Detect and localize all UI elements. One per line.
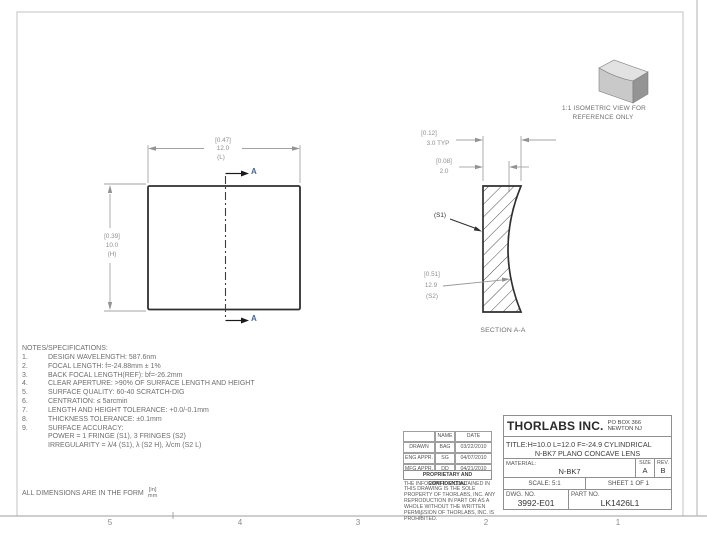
front-height-bracket-dim: [0.39] xyxy=(104,233,120,240)
part-no-cell: PART NO. LK1426L1 xyxy=(568,489,672,510)
drawing-title-line2: N-BK7 PLANO CONCAVE LENS xyxy=(504,449,671,458)
rev-value: B xyxy=(655,466,671,475)
note-item: 6.CENTRATION: ≤ 5arcmin xyxy=(22,398,352,407)
lens-cross-section xyxy=(483,186,521,312)
company-cell: THORLABS INC. PO BOX 366 NEWTON NJ xyxy=(503,415,672,437)
part-no-value: LK1426L1 xyxy=(569,498,671,508)
approval-role: ENG APPR. xyxy=(403,453,435,464)
proprietary-header: PROPRIETARY AND CONFIDENTIAL xyxy=(403,470,492,480)
edge-thickness-bracket-dim: [0.12] xyxy=(421,130,437,137)
front-height-dim-suffix: (H) xyxy=(108,251,117,258)
material-label: MATERIAL: xyxy=(504,459,635,467)
zone-number-3: 3 xyxy=(356,518,360,527)
section-letter-bottom: A xyxy=(251,314,257,323)
front-width-bracket-dim: [0.47] xyxy=(215,137,231,144)
part-no-label: PART NO. xyxy=(569,490,671,498)
approval-date: 04/07/2010 xyxy=(455,453,492,464)
company-address: PO BOX 366 NEWTON NJ xyxy=(608,420,642,433)
dwg-no-value: 3992-E01 xyxy=(504,498,568,508)
title-cell: TITLE:H=10.0 L=12.0 F=-24.9 CYLINDRICAL … xyxy=(503,436,672,459)
iso-caption-line1: 1:1 ISOMETRIC VIEW FOR xyxy=(562,105,646,112)
note-item: POWER = 1 FRINGE (S1), 3 FRINGES (S2) xyxy=(22,433,352,442)
size-value: A xyxy=(636,466,654,475)
approvals-name-header: NAME xyxy=(435,431,455,442)
units-fraction: [in] mm xyxy=(148,488,158,499)
rev-label: REV. xyxy=(655,459,671,466)
note-item: 3.BACK FOCAL LENGTH(REF): bf=-26.2mm xyxy=(22,372,352,381)
center-thickness-dim: 2.0 xyxy=(440,168,449,175)
notes-title: NOTES/SPECIFICATIONS: xyxy=(22,345,352,354)
drawing-sheet: 5 4 3 2 1 1:1 ISOMETRIC VIEW FOR REFEREN… xyxy=(0,0,707,538)
surface2-label: (S2) xyxy=(426,293,438,300)
section-view-geometry xyxy=(443,136,556,312)
size-cell: SIZE A xyxy=(635,458,655,478)
zone-number-1: 1 xyxy=(616,518,620,527)
approval-name: BAG xyxy=(435,442,455,453)
approval-date: 03/22/2010 xyxy=(455,442,492,453)
note-item: 7.LENGTH AND HEIGHT TOLERANCE: +0.0/-0.1… xyxy=(22,407,352,416)
dwg-no-cell: DWG. NO. 3992-E01 xyxy=(503,489,569,510)
note-item: 1.DESIGN WAVELENGTH: 587.6nm xyxy=(22,354,352,363)
note-item: 4.CLEAR APERTURE: >90% OF SURFACE LENGTH… xyxy=(22,380,352,389)
size-label: SIZE xyxy=(636,459,654,466)
iso-caption-line2: REFERENCE ONLY xyxy=(573,114,634,121)
approvals-table: NAME DATE DRAWN BAG 03/22/2010 ENG APPR.… xyxy=(403,431,492,475)
front-height-dim: 10.0 xyxy=(106,242,118,249)
section-letter-top: A xyxy=(251,167,257,176)
note-item: IRREGULARITY = λ/4 (S1), λ (S2 H), λ/cm … xyxy=(22,442,352,451)
isometric-lens-icon xyxy=(599,60,648,103)
rev-cell: REV. B xyxy=(654,458,672,478)
approval-role: DRAWN xyxy=(403,442,435,453)
proprietary-text: THE INFORMATION CONTAINED IN THIS DRAWIN… xyxy=(404,482,501,523)
company-name: THORLABS INC. xyxy=(504,419,604,433)
drawing-title-line1: TITLE:H=10.0 L=12.0 F=-24.9 CYLINDRICAL xyxy=(504,437,671,449)
edge-thickness-dim: 3.0 TYP xyxy=(427,140,450,147)
surface1-label: (S1) xyxy=(434,212,446,219)
approvals-date-header: DATE xyxy=(455,431,492,442)
radius-bracket-dim: [0.51] xyxy=(424,271,440,278)
note-item: 9.SURFACE ACCURACY: xyxy=(22,425,352,434)
dwg-no-label: DWG. NO. xyxy=(504,490,568,498)
center-thickness-bracket-dim: [0.08] xyxy=(436,158,452,165)
material-value: N-BK7 xyxy=(504,467,635,476)
front-width-dim: 12.0 xyxy=(217,145,229,152)
front-width-dim-suffix: (L) xyxy=(217,154,225,161)
units-note: ALL DIMENSIONS ARE IN THE FORM [in] mm xyxy=(22,488,157,499)
approval-name: SG xyxy=(435,453,455,464)
section-view-caption: SECTION A-A xyxy=(480,327,525,334)
zone-number-4: 4 xyxy=(238,518,242,527)
note-item: 2.FOCAL LENGTH: f=-24.88mm ± 1% xyxy=(22,363,352,372)
radius-dim: 12.9 xyxy=(425,282,437,289)
front-view-geometry xyxy=(104,145,300,324)
material-cell: MATERIAL: N-BK7 xyxy=(503,458,636,478)
zone-number-5: 5 xyxy=(108,518,112,527)
note-item: 5.SURFACE QUALITY: 60-40 SCRATCH-DIG xyxy=(22,389,352,398)
note-item: 8.THICKNESS TOLERANCE: ±0.1mm xyxy=(22,416,352,425)
notes-block: NOTES/SPECIFICATIONS: 1.DESIGN WAVELENGT… xyxy=(22,345,352,451)
